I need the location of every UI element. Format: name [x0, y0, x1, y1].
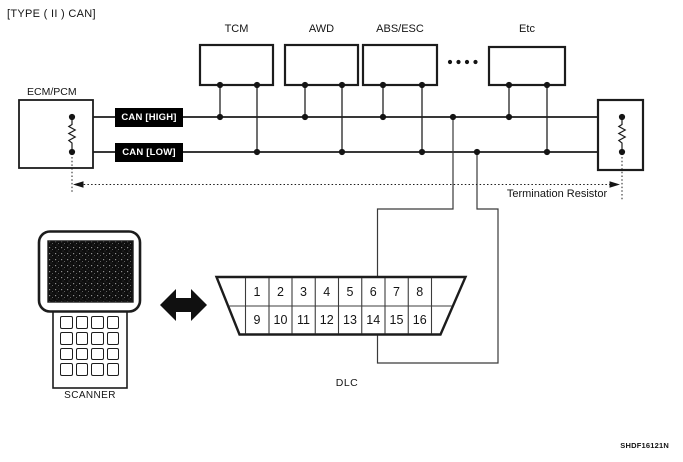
keypad-key: [107, 332, 120, 345]
keypad-key: [76, 348, 89, 361]
dimension-arrow-right-icon: [610, 181, 621, 188]
scanner-label: SCANNER: [50, 390, 130, 401]
dimension-arrow-left-icon: [73, 181, 84, 188]
keypad-key: [76, 332, 89, 345]
dlc-pin-3: 3: [292, 279, 315, 306]
dlc-pin-2: 2: [269, 279, 292, 306]
can-low-label: CAN [LOW]: [115, 143, 183, 162]
dlc-pin-8: 8: [408, 279, 431, 306]
module-label-tcm: TCM: [197, 23, 277, 35]
can-high-tap-line: [378, 117, 454, 278]
dlc-label: DLC: [317, 377, 377, 389]
can-high-label: CAN [HIGH]: [115, 108, 183, 127]
keypad-key: [91, 348, 104, 361]
keypad-key: [107, 316, 120, 329]
scanner-screen: [48, 241, 133, 302]
dlc-pin-10: 10: [269, 307, 292, 334]
ecm-pcm-box: [19, 100, 93, 168]
dlc-pin-11: 11: [292, 307, 315, 334]
module-label-etc: Etc: [487, 23, 567, 35]
dlc-pin-13: 13: [339, 307, 362, 334]
figure-code: SHDF16121N: [595, 441, 669, 450]
dlc-pin-12: 12: [315, 307, 338, 334]
dlc-pin-4: 4: [315, 279, 338, 306]
keypad-key: [60, 332, 73, 345]
dlc-pin-1: 1: [246, 279, 269, 306]
keypad-key: [91, 332, 104, 345]
dlc-pin-9: 9: [246, 307, 269, 334]
etc-box: [489, 47, 565, 85]
dlc-pin-16: 16: [408, 307, 431, 334]
keypad-key: [60, 316, 73, 329]
keypad-key: [76, 363, 89, 376]
scanner-dlc-arrow-icon: [160, 289, 207, 321]
ellipsis-dots-icon: [448, 60, 478, 64]
keypad-key: [60, 348, 73, 361]
dlc-pin-6: 6: [362, 279, 385, 306]
termination-resistor-label: Termination Resistor: [498, 188, 616, 200]
awd-box: [285, 45, 358, 85]
tcm-box: [200, 45, 273, 85]
keypad-key: [76, 316, 89, 329]
diagram-canvas: [TYPE ( II ) CAN] ECM/PCM TCM AWD ABS/ES…: [0, 0, 683, 462]
scanner-keypad: [60, 316, 119, 376]
keypad-key: [91, 316, 104, 329]
keypad-key: [91, 363, 104, 376]
module-label-awd: AWD: [282, 23, 362, 35]
dlc-pin-14: 14: [362, 307, 385, 334]
keypad-key: [107, 363, 120, 376]
dlc-pin-7: 7: [385, 279, 408, 306]
keypad-key: [60, 363, 73, 376]
keypad-key: [107, 348, 120, 361]
ecm-pcm-label: ECM/PCM: [27, 86, 77, 98]
dlc-pin-15: 15: [385, 307, 408, 334]
abs-esc-box: [363, 45, 437, 85]
diagram-title: [TYPE ( II ) CAN]: [7, 8, 96, 20]
dlc-pin-5: 5: [339, 279, 362, 306]
module-label-abs-esc: ABS/ESC: [360, 23, 440, 35]
